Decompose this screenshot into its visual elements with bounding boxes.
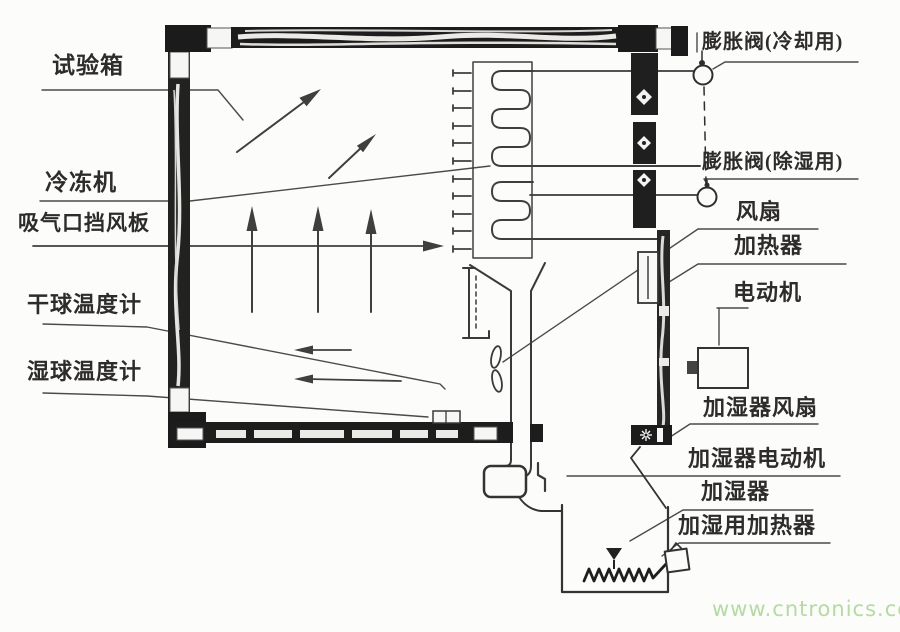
left-arrow-2	[307, 379, 401, 381]
circulation-fan	[489, 345, 503, 392]
suction-arrow-head	[423, 241, 444, 252]
expansion-valve-dehumidify-symbol	[698, 188, 717, 207]
spray-nozzle	[606, 548, 622, 569]
suction-baffle-plate	[463, 268, 489, 338]
motor-shaft-stub	[687, 361, 698, 374]
leader-motor	[717, 308, 748, 345]
wall-top-streak	[238, 35, 616, 39]
heater-box	[638, 252, 658, 303]
wall-left-white-block-bottom	[170, 388, 189, 412]
label-humidifier-fan: 加湿器风扇	[703, 396, 818, 420]
leader-valve-dehumidify	[704, 179, 858, 187]
wall-top-left-corner	[165, 25, 211, 52]
duct-right-wall	[514, 263, 545, 478]
wall-bottom-white-block-left	[177, 428, 203, 440]
humidifier-heating-element	[584, 564, 666, 581]
left-arrow-1-head	[294, 346, 313, 355]
label-expansion-valve-dehumidify: 膨胀阀(除湿用)	[702, 151, 843, 173]
airflow-arrows	[33, 89, 444, 384]
label-humidifier-motor: 加湿器电动机	[688, 447, 826, 471]
partition-wall	[631, 53, 670, 428]
diag-arrow-2	[329, 146, 363, 178]
watermark-text: www.cntronics.com	[712, 597, 900, 621]
up-arrow-1-head	[247, 206, 258, 231]
label-humidifier-heater: 加湿用加热器	[678, 514, 816, 538]
evaporator-coil	[453, 62, 700, 258]
expansion-valves	[694, 51, 717, 207]
humidifier-motor-linkage	[631, 447, 666, 508]
up-arrow-2-head	[313, 206, 324, 231]
label-heater: 加热器	[734, 234, 803, 258]
wall-bottom-white-block-right	[474, 427, 497, 440]
wall-top-right-block	[618, 25, 658, 52]
humidifier-fan-block	[631, 425, 672, 445]
wall-left-white-block-top	[170, 52, 189, 78]
leader-test-chamber	[42, 90, 243, 120]
label-test-chamber: 试验箱	[52, 53, 124, 78]
label-wet-bulb-thermometer: 湿球温度计	[27, 360, 142, 384]
expansion-valve-cooling-symbol	[694, 66, 713, 85]
label-fan: 风扇	[736, 200, 782, 224]
chamber-walls	[165, 25, 688, 448]
left-arrow-2-head	[294, 375, 313, 384]
fan-blade-top	[489, 345, 502, 368]
leader-valve-cooling	[713, 62, 858, 69]
motor-box	[687, 348, 748, 388]
duct-stub	[538, 463, 545, 491]
diagram-stage: 试验箱 冷冻机 吸气口挡风板 干球温度计 湿球温度计 膨胀阀(冷却用) 膨胀阀(…	[0, 0, 900, 632]
wall-bottom-right-chunk	[530, 424, 543, 442]
humidifier-assembly	[484, 447, 689, 592]
leader-wet-bulb	[43, 393, 428, 417]
coil-serpentine-upper	[492, 71, 700, 166]
partition-seg-1	[631, 53, 658, 115]
coil-serpentine-lower	[492, 182, 657, 239]
diag-arrow-1	[237, 99, 308, 152]
leader-humidifier-fan	[664, 424, 818, 441]
wall-top-streak3	[245, 30, 612, 31]
partition-strip-gap1	[659, 306, 669, 316]
wall-top-white-block-left	[207, 28, 232, 48]
label-motor: 电动机	[733, 281, 802, 305]
partition-strip-gap2	[659, 358, 669, 366]
refrigerant-pipes	[530, 71, 697, 195]
float-box	[484, 466, 526, 497]
humidifier-fan-hub	[645, 434, 648, 437]
wall-top-corner-anchor	[671, 26, 688, 56]
up-arrow-3-head	[366, 209, 377, 234]
label-humidifier: 加湿器	[701, 480, 770, 504]
wet-bulb-fixture	[433, 411, 460, 423]
coil-fins	[453, 70, 471, 252]
water-feed-pipe	[519, 497, 562, 511]
label-refrigerator: 冷冻机	[45, 170, 117, 195]
coil-frame	[473, 62, 532, 258]
wall-top-white-block-right	[656, 28, 672, 49]
nozzle-triangle	[606, 548, 622, 560]
duct-assembly	[470, 263, 545, 491]
motor-body	[698, 348, 748, 388]
label-suction-baffle: 吸气口挡风板	[18, 212, 150, 235]
label-dry-bulb-thermometer: 干球温度计	[27, 293, 142, 317]
fan-blade-bottom	[490, 369, 503, 392]
label-expansion-valve-cooling: 膨胀阀(冷却用)	[702, 31, 843, 53]
